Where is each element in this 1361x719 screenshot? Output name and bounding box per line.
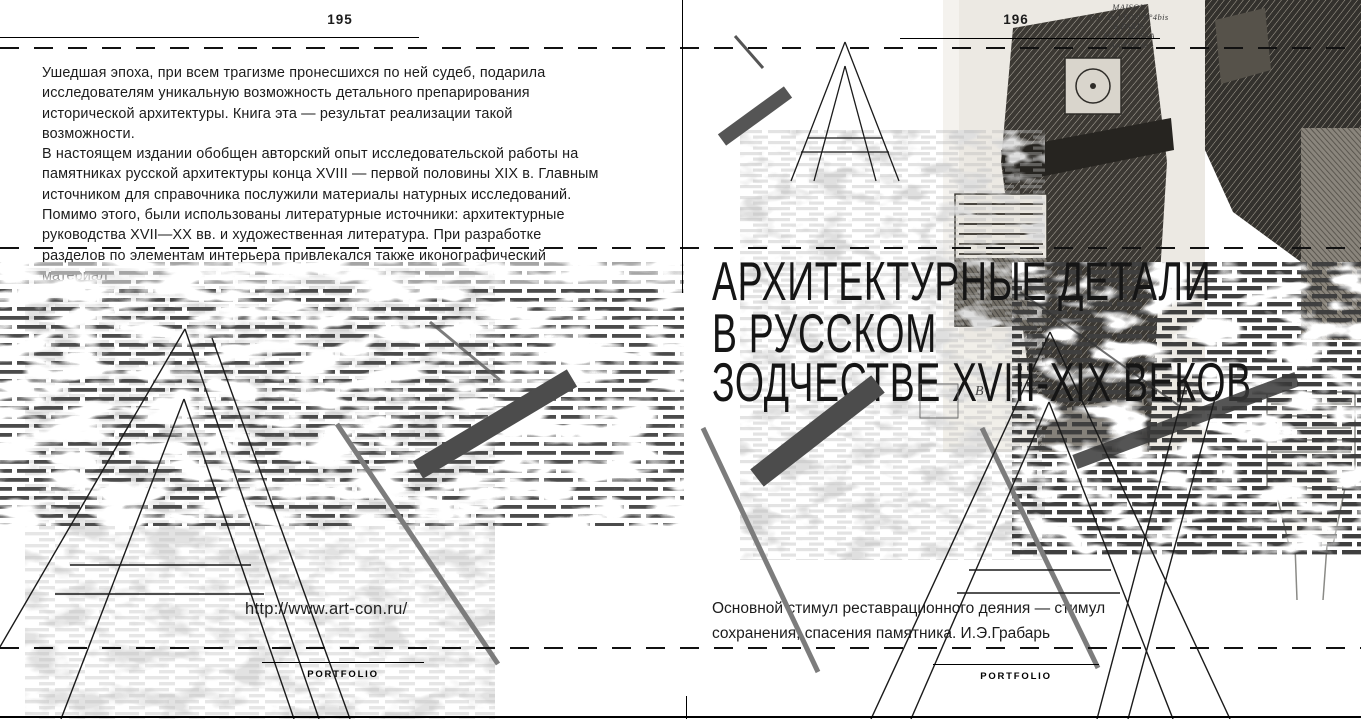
engraving-detail-box — [920, 384, 958, 418]
outline-letter-a-left — [0, 329, 350, 719]
line-left-short — [430, 322, 500, 380]
portfolio-rule-right — [933, 664, 1099, 665]
decorative-overlay — [0, 0, 1361, 719]
pagenum-rule-left — [0, 37, 419, 38]
gray-lines — [337, 36, 1185, 672]
outline-letter-a-top — [791, 42, 899, 181]
page-number-left: 195 — [300, 12, 380, 27]
dashed-fold-line-middle — [0, 247, 1361, 249]
center-fold-line — [682, 0, 683, 293]
line-right-short — [735, 36, 763, 68]
bar-right-top — [722, 92, 788, 140]
portfolio-rule-left — [262, 662, 424, 663]
footer-portfolio-right: PORTFOLIO — [973, 671, 1059, 682]
bar-right-bricks — [1075, 379, 1297, 462]
bar-right-mid — [757, 384, 878, 478]
footer-portfolio-left: PORTFOLIO — [300, 669, 386, 680]
bar-left-page — [418, 378, 572, 470]
dashed-fold-line-bottom — [0, 647, 1361, 649]
dashed-fold-line-top — [0, 47, 1361, 49]
book-spread: Ушедшая эпоха, при всем трагизме пронесш… — [0, 0, 1361, 719]
gray-bars — [418, 92, 1297, 478]
outline-letter-a-right — [871, 332, 1230, 719]
page-number-right: 196 — [976, 12, 1056, 27]
pagenum-rule-right — [900, 38, 1160, 39]
line-over-bricks — [1020, 292, 1185, 410]
bottom-trim-line — [0, 716, 1361, 718]
